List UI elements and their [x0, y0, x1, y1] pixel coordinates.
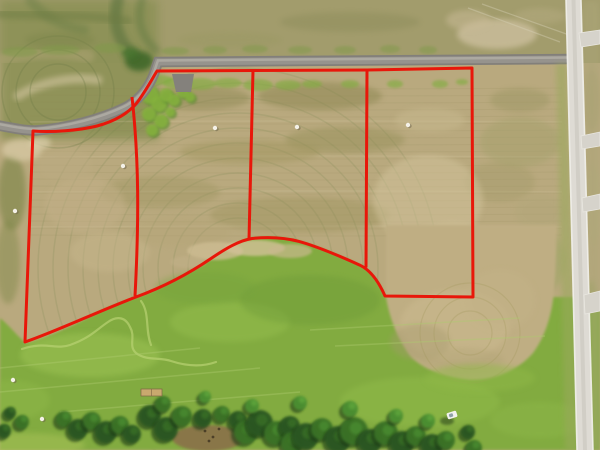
shed-structure: [141, 389, 162, 396]
aerial-photo: [0, 0, 600, 450]
lot-divider-3: [366, 70, 367, 268]
aerial-photo-svg: [0, 0, 600, 450]
gravel-road-stub: [579, 30, 600, 47]
gravel-road-stub: [584, 291, 600, 314]
